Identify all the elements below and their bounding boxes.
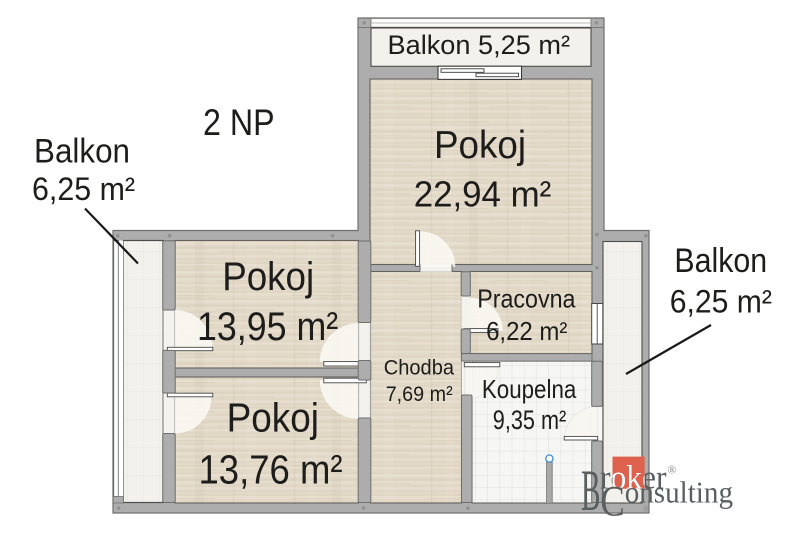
svg-text:Balkon: Balkon bbox=[674, 242, 767, 280]
svg-text:Chodba: Chodba bbox=[384, 357, 455, 380]
svg-text:22,94 m²: 22,94 m² bbox=[414, 173, 552, 214]
svg-text:C: C bbox=[600, 477, 625, 525]
svg-text:Pracovna: Pracovna bbox=[477, 284, 576, 314]
svg-text:6,25 m²: 6,25 m² bbox=[670, 284, 773, 320]
svg-text:B: B bbox=[581, 458, 601, 523]
svg-text:9,35 m²: 9,35 m² bbox=[493, 405, 567, 435]
svg-text:Pokoj: Pokoj bbox=[434, 124, 526, 167]
svg-text:Pokoj: Pokoj bbox=[227, 395, 319, 441]
svg-text:onsulting: onsulting bbox=[625, 475, 733, 510]
svg-text:Balkon: Balkon bbox=[34, 133, 130, 171]
svg-text:Balkon 5,25 m²: Balkon 5,25 m² bbox=[388, 30, 571, 60]
svg-text:2 NP: 2 NP bbox=[203, 102, 275, 143]
svg-text:13,95 m²: 13,95 m² bbox=[197, 305, 338, 349]
svg-text:Koupelna: Koupelna bbox=[482, 374, 577, 404]
svg-text:6,22 m²: 6,22 m² bbox=[486, 316, 568, 346]
svg-text:®: ® bbox=[643, 504, 650, 514]
svg-text:13,76 m²: 13,76 m² bbox=[199, 446, 343, 492]
svg-text:Pokoj: Pokoj bbox=[222, 255, 314, 299]
svg-text:6,25 m²: 6,25 m² bbox=[32, 171, 135, 207]
svg-text:7,69 m²: 7,69 m² bbox=[386, 383, 453, 406]
